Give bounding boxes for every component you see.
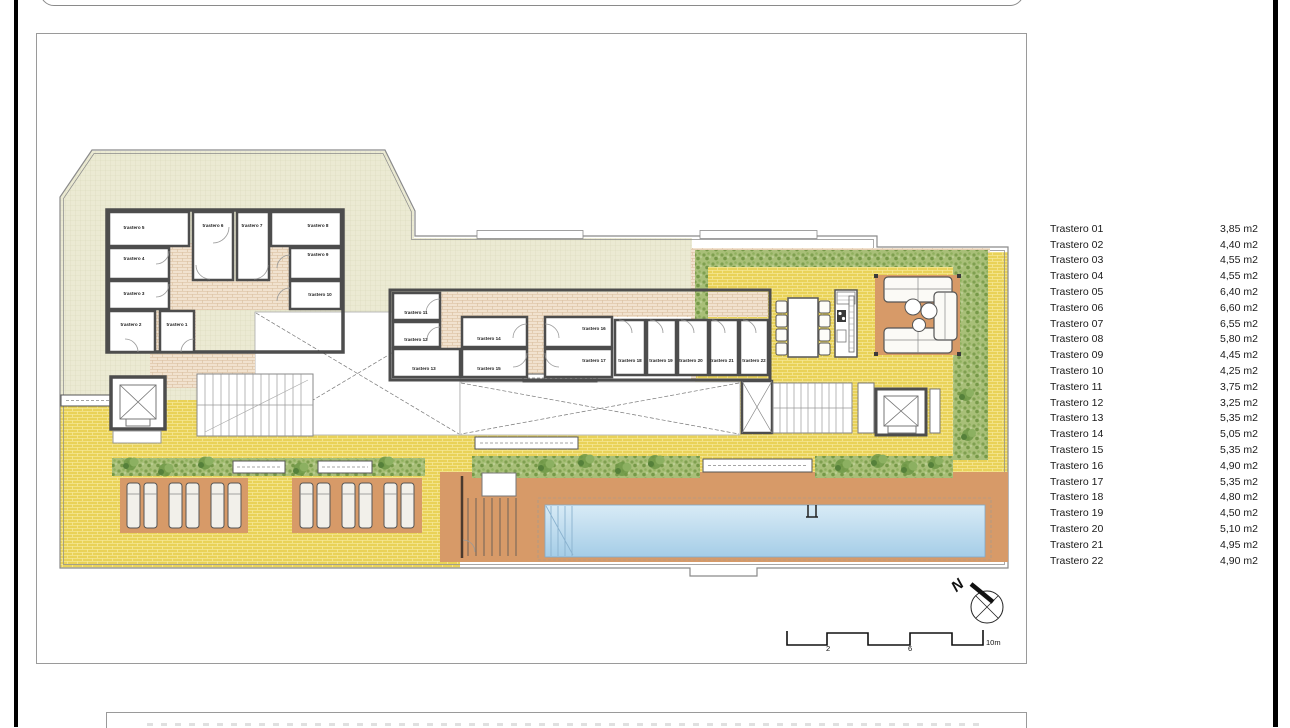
legend-row: Trastero 12 3,25 m2 xyxy=(1050,395,1258,411)
legend-room-name: Trastero 16 xyxy=(1050,460,1103,472)
legend-room-name: Trastero 17 xyxy=(1050,476,1103,488)
north-arrow: N xyxy=(948,575,1003,623)
legend-row: Trastero 11 3,75 m2 xyxy=(1050,379,1258,395)
legend-row: Trastero 06 6,60 m2 xyxy=(1050,300,1258,316)
legend-room-name: Trastero 22 xyxy=(1050,555,1103,567)
kitchen-unit xyxy=(835,290,857,357)
legend-row: Trastero 05 6,40 m2 xyxy=(1050,284,1258,300)
legend-room-name: Trastero 01 xyxy=(1050,223,1103,235)
legend-room-area: 3,75 m2 xyxy=(1220,381,1258,393)
legend-room-name: Trastero 13 xyxy=(1050,412,1103,424)
dining-table xyxy=(788,298,818,357)
legend-room-name: Trastero 08 xyxy=(1050,333,1103,345)
legend-room-name: Trastero 02 xyxy=(1050,239,1103,251)
stairs-left xyxy=(197,374,313,436)
legend-row: Trastero 18 4,80 m2 xyxy=(1050,490,1258,506)
room-label: trastero 3 xyxy=(124,291,145,296)
legend-room-name: Trastero 18 xyxy=(1050,491,1103,503)
room-label: trastero 22 xyxy=(742,358,766,363)
legend-room-name: Trastero 19 xyxy=(1050,507,1103,519)
scale-label: 6 xyxy=(908,644,912,653)
legend-room-area: 5,35 m2 xyxy=(1220,444,1258,456)
legend-room-name: Trastero 03 xyxy=(1050,254,1103,266)
room-label: trastero 6 xyxy=(203,223,224,228)
legend-room-area: 4,80 m2 xyxy=(1220,491,1258,503)
room-label: trastero 21 xyxy=(710,358,734,363)
legend-room-area: 4,55 m2 xyxy=(1220,270,1258,282)
legend-row: Trastero 20 5,10 m2 xyxy=(1050,521,1258,537)
legend-room-area: 5,35 m2 xyxy=(1220,412,1258,424)
legend-room-area: 6,55 m2 xyxy=(1220,318,1258,330)
room-label: trastero 5 xyxy=(124,225,145,230)
legend-row: Trastero 17 5,35 m2 xyxy=(1050,474,1258,490)
north-label: N xyxy=(948,575,968,596)
legend-row: Trastero 19 4,50 m2 xyxy=(1050,505,1258,521)
legend-row: Trastero 01 3,85 m2 xyxy=(1050,221,1258,237)
legend-room-area: 3,25 m2 xyxy=(1220,397,1258,409)
legend-room-area: 5,80 m2 xyxy=(1220,333,1258,345)
legend-room-area: 4,55 m2 xyxy=(1220,254,1258,266)
room-label: trastero 11 xyxy=(404,310,428,315)
legend-room-name: Trastero 21 xyxy=(1050,539,1103,551)
legend-row: Trastero 14 5,05 m2 xyxy=(1050,426,1258,442)
floor-plan: trastero 5 trastero 6 trastero 7 traster… xyxy=(36,33,1025,662)
sofa-set xyxy=(874,274,961,356)
legend-row: Trastero 15 5,35 m2 xyxy=(1050,442,1258,458)
room-label: trastero 16 xyxy=(582,326,606,331)
room-label: trastero 7 xyxy=(242,223,263,228)
legend-row: Trastero 13 5,35 m2 xyxy=(1050,411,1258,427)
room-label: trastero 10 xyxy=(308,292,332,297)
legend-room-area: 4,90 m2 xyxy=(1220,555,1258,567)
legend-row: Trastero 08 5,80 m2 xyxy=(1050,332,1258,348)
legend-room-area: 4,40 m2 xyxy=(1220,239,1258,251)
legend-room-name: Trastero 04 xyxy=(1050,270,1103,282)
room-label: trastero 17 xyxy=(582,358,606,363)
scale-bar: 2 6 10m xyxy=(787,630,1001,653)
legend-row: Trastero 02 4,40 m2 xyxy=(1050,237,1258,253)
viewer-frame-right xyxy=(1273,0,1278,727)
room-label: trastero 19 xyxy=(649,358,673,363)
stairs-right xyxy=(773,383,852,433)
previous-sheet-box xyxy=(40,0,1024,6)
room-label: trastero 4 xyxy=(124,256,145,261)
legend-row: Trastero 22 4,90 m2 xyxy=(1050,553,1258,569)
room-label: trastero 2 xyxy=(121,322,142,327)
legend-room-area: 5,10 m2 xyxy=(1220,523,1258,535)
legend-room-area: 4,25 m2 xyxy=(1220,365,1258,377)
legend-room-name: Trastero 14 xyxy=(1050,428,1103,440)
legend-room-area: 6,40 m2 xyxy=(1220,286,1258,298)
room-label: trastero 14 xyxy=(477,336,501,341)
viewer-frame-left xyxy=(14,0,18,727)
legend-row: Trastero 09 4,45 m2 xyxy=(1050,347,1258,363)
room-label: trastero 13 xyxy=(412,366,436,371)
legend-room-area: 6,60 m2 xyxy=(1220,302,1258,314)
legend-row: Trastero 04 4,55 m2 xyxy=(1050,268,1258,284)
scale-label: 2 xyxy=(826,644,830,653)
scale-label: 10m xyxy=(986,638,1001,647)
legend-room-area: 4,50 m2 xyxy=(1220,507,1258,519)
legend-room-name: Trastero 15 xyxy=(1050,444,1103,456)
room-label: trastero 9 xyxy=(308,252,329,257)
legend-row: Trastero 03 4,55 m2 xyxy=(1050,253,1258,269)
room-label: trastero 20 xyxy=(679,358,703,363)
elevator-left xyxy=(111,377,165,443)
next-sheet-box xyxy=(106,712,1027,728)
legend-room-area: 3,85 m2 xyxy=(1220,223,1258,235)
legend-room-area: 5,05 m2 xyxy=(1220,428,1258,440)
legend-room-name: Trastero 09 xyxy=(1050,349,1103,361)
legend-room-area: 4,45 m2 xyxy=(1220,349,1258,361)
legend-room-area: 4,90 m2 xyxy=(1220,460,1258,472)
room-label: trastero 8 xyxy=(308,223,329,228)
pool-deck xyxy=(440,472,1008,562)
legend-room-name: Trastero 07 xyxy=(1050,318,1103,330)
legend-row: Trastero 07 6,55 m2 xyxy=(1050,316,1258,332)
legend-room-name: Trastero 10 xyxy=(1050,365,1103,377)
legend-room-area: 5,35 m2 xyxy=(1220,476,1258,488)
legend-room-name: Trastero 20 xyxy=(1050,523,1103,535)
legend-room-name: Trastero 12 xyxy=(1050,397,1103,409)
swimming-pool xyxy=(545,505,985,557)
legend-room-name: Trastero 05 xyxy=(1050,286,1103,298)
room-label: trastero 15 xyxy=(477,366,501,371)
room-label: trastero 1 xyxy=(167,322,188,327)
room-label: trastero 18 xyxy=(618,358,642,363)
area-legend: Trastero 01 3,85 m2 Trastero 02 4,40 m2 … xyxy=(1050,221,1258,569)
legend-row: Trastero 10 4,25 m2 xyxy=(1050,363,1258,379)
room-label: trastero 12 xyxy=(404,337,428,342)
legend-room-name: Trastero 11 xyxy=(1050,381,1103,393)
legend-row: Trastero 16 4,90 m2 xyxy=(1050,458,1258,474)
legend-room-area: 4,95 m2 xyxy=(1220,539,1258,551)
next-sheet-ghost-content xyxy=(147,723,987,726)
legend-row: Trastero 21 4,95 m2 xyxy=(1050,537,1258,553)
legend-room-name: Trastero 06 xyxy=(1050,302,1103,314)
